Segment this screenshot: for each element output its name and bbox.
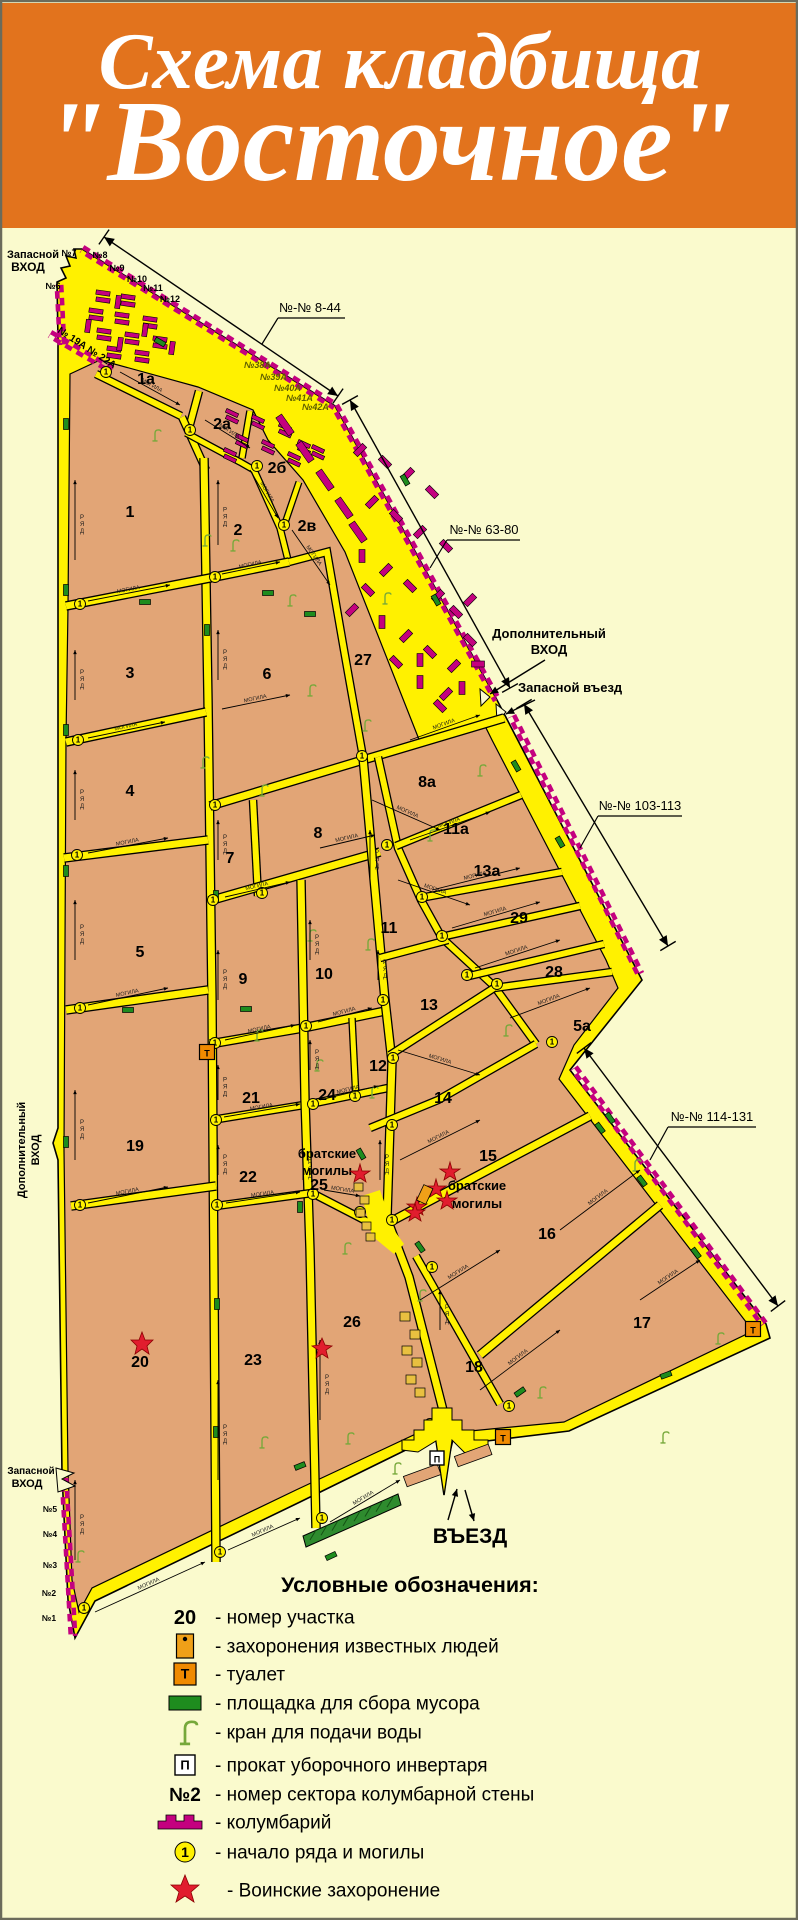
svg-text:№42А: №42А xyxy=(302,402,329,412)
svg-text:РЯД: РЯД xyxy=(80,925,84,945)
svg-text:№-№ 63-80: №-№ 63-80 xyxy=(449,522,518,537)
svg-text:№-№ 8-44: №-№ 8-44 xyxy=(279,300,341,315)
svg-text:№3: №3 xyxy=(43,1560,57,1570)
svg-text:№12: №12 xyxy=(160,294,180,304)
svg-text:1: 1 xyxy=(188,426,193,435)
svg-text:ВЪЕЗД: ВЪЕЗД xyxy=(433,1525,508,1548)
svg-text:№5: №5 xyxy=(43,1504,57,1514)
svg-text:1: 1 xyxy=(78,1004,83,1013)
svg-text:РЯД: РЯД xyxy=(325,1375,329,1395)
svg-text:19: 19 xyxy=(126,1138,144,1155)
svg-text:РЯД: РЯД xyxy=(445,1305,449,1325)
svg-text:РЯД: РЯД xyxy=(223,1425,227,1445)
svg-text:11: 11 xyxy=(381,920,398,937)
svg-text:братские: братские xyxy=(298,1146,356,1161)
svg-text:25: 25 xyxy=(310,1177,328,1194)
svg-text:1: 1 xyxy=(76,736,81,745)
svg-text:- захоронения известных людей: - захоронения известных людей xyxy=(215,1637,499,1658)
svg-text:1: 1 xyxy=(311,1100,316,1109)
svg-text:1: 1 xyxy=(213,573,218,582)
svg-text:№4: №4 xyxy=(43,1529,57,1539)
svg-text:РЯД: РЯД xyxy=(223,650,227,670)
svg-text:2б: 2б xyxy=(268,460,287,477)
svg-text:Т: Т xyxy=(500,1434,506,1444)
svg-text:10: 10 xyxy=(315,966,333,983)
svg-text:1: 1 xyxy=(104,368,109,377)
svg-text:РЯД: РЯД xyxy=(223,835,227,855)
svg-text:1: 1 xyxy=(440,932,445,941)
svg-text:- Воинские захоронение: - Воинские захоронение xyxy=(227,1881,440,1902)
svg-text:№-№ 114-131: №-№ 114-131 xyxy=(671,1109,754,1124)
svg-text:РЯД: РЯД xyxy=(223,508,227,528)
svg-text:14: 14 xyxy=(434,1090,452,1107)
svg-text:16: 16 xyxy=(538,1226,556,1243)
svg-text:1: 1 xyxy=(320,1514,325,1523)
svg-text:1: 1 xyxy=(78,1201,83,1210)
svg-text:1: 1 xyxy=(390,1121,395,1130)
svg-text:№8: №8 xyxy=(92,250,107,260)
svg-text:2: 2 xyxy=(234,522,243,539)
svg-text:1: 1 xyxy=(126,504,135,521)
svg-text:№11: №11 xyxy=(143,283,163,293)
svg-text:26: 26 xyxy=(343,1314,361,1331)
svg-text:8: 8 xyxy=(314,825,323,842)
svg-text:5: 5 xyxy=(136,944,145,961)
svg-text:1: 1 xyxy=(420,893,425,902)
svg-text:Дополнительный: Дополнительный xyxy=(16,1102,28,1198)
svg-text:РЯД: РЯД xyxy=(223,1078,227,1098)
svg-text:РЯД: РЯД xyxy=(375,850,379,870)
svg-text:1: 1 xyxy=(181,1844,189,1860)
svg-text:РЯД: РЯД xyxy=(315,935,319,955)
svg-text:6: 6 xyxy=(263,666,272,683)
svg-text:№9: №9 xyxy=(109,263,124,273)
svg-text:1: 1 xyxy=(391,1054,396,1063)
svg-text:8а: 8а xyxy=(418,774,436,791)
svg-text:Дополнительный: Дополнительный xyxy=(492,626,606,641)
svg-text:1: 1 xyxy=(304,1022,309,1031)
svg-text:9: 9 xyxy=(239,971,248,988)
svg-text:- колумбарий: - колумбарий xyxy=(215,1813,331,1834)
svg-text:12: 12 xyxy=(369,1058,387,1075)
svg-text:№7: №7 xyxy=(61,248,76,258)
svg-text:- номер участка: - номер участка xyxy=(215,1608,355,1629)
svg-text:РЯД: РЯД xyxy=(80,670,84,690)
svg-text:могилы: могилы xyxy=(452,1196,502,1211)
svg-text:- номер сектора колумбарной ст: - номер сектора колумбарной стены xyxy=(215,1785,534,1806)
svg-text:20: 20 xyxy=(131,1354,149,1371)
svg-text:Условные обозначения:: Условные обозначения: xyxy=(281,1573,539,1597)
svg-text:3: 3 xyxy=(126,665,135,682)
svg-text:15: 15 xyxy=(479,1148,497,1165)
svg-text:1: 1 xyxy=(495,980,500,989)
svg-text:1: 1 xyxy=(215,1201,220,1210)
svg-text:1: 1 xyxy=(360,752,365,761)
svg-text:28: 28 xyxy=(545,964,563,981)
svg-text:П: П xyxy=(434,1455,440,1465)
svg-text:17: 17 xyxy=(633,1315,651,1332)
svg-text:"Восточное": "Восточное" xyxy=(43,78,737,206)
svg-text:1: 1 xyxy=(282,521,287,530)
svg-text:23: 23 xyxy=(244,1352,262,1369)
svg-text:братские: братские xyxy=(448,1178,506,1193)
svg-text:№40А: №40А xyxy=(274,383,301,393)
svg-text:27: 27 xyxy=(354,652,372,669)
svg-text:РЯД: РЯД xyxy=(315,1050,319,1070)
svg-text:1: 1 xyxy=(75,851,80,860)
svg-text:1: 1 xyxy=(78,600,83,609)
svg-text:П: П xyxy=(180,1758,189,1773)
svg-text:№39А: №39А xyxy=(260,372,287,382)
svg-text:1: 1 xyxy=(353,1092,358,1101)
svg-text:29: 29 xyxy=(510,910,528,927)
svg-text:Т: Т xyxy=(750,1326,756,1336)
svg-text:№2: №2 xyxy=(169,1785,201,1806)
svg-text:Запасной: Запасной xyxy=(7,1466,54,1477)
svg-text:13: 13 xyxy=(420,997,438,1014)
svg-text:1: 1 xyxy=(381,996,386,1005)
svg-text:№38А: №38А xyxy=(244,360,271,370)
svg-text:№1: №1 xyxy=(42,1613,56,1623)
svg-text:- прокат уборочного инвертаря: - прокат уборочного инвертаря xyxy=(215,1756,488,1777)
svg-text:РЯД: РЯД xyxy=(80,1515,84,1535)
svg-text:1: 1 xyxy=(430,1263,435,1272)
svg-text:- кран для подачи воды: - кран для подачи воды xyxy=(215,1723,422,1744)
svg-text:ВХОД: ВХОД xyxy=(11,260,45,274)
svg-text:Т: Т xyxy=(204,1049,210,1059)
svg-text:Т: Т xyxy=(181,1666,190,1682)
svg-text:1: 1 xyxy=(260,889,265,898)
svg-text:ВХОД: ВХОД xyxy=(12,1478,43,1490)
svg-text:- начало ряда и могилы: - начало ряда и могилы xyxy=(215,1843,424,1864)
svg-text:1: 1 xyxy=(82,1604,87,1613)
svg-text:1: 1 xyxy=(214,1116,219,1125)
svg-text:24: 24 xyxy=(318,1087,336,1104)
svg-text:- туалет: - туалет xyxy=(215,1665,285,1686)
svg-text:РЯД: РЯД xyxy=(385,1155,389,1175)
svg-text:18: 18 xyxy=(465,1359,483,1376)
svg-text:22: 22 xyxy=(239,1169,257,1186)
svg-text:РЯД: РЯД xyxy=(80,790,84,810)
svg-text:РЯД: РЯД xyxy=(80,1120,84,1140)
svg-text:1: 1 xyxy=(550,1038,555,1047)
svg-text:ВХОД: ВХОД xyxy=(30,1134,42,1165)
svg-text:РЯД: РЯД xyxy=(383,960,387,980)
svg-text:5а: 5а xyxy=(573,1018,591,1035)
svg-text:- площадка для сбора мусора: - площадка для сбора мусора xyxy=(215,1694,480,1715)
svg-text:могилы: могилы xyxy=(302,1163,352,1178)
svg-text:1: 1 xyxy=(385,841,390,850)
svg-text:1: 1 xyxy=(255,462,260,471)
svg-text:4: 4 xyxy=(126,783,135,800)
svg-text:№6: №6 xyxy=(45,281,60,291)
svg-text:РЯД: РЯД xyxy=(223,1155,227,1175)
svg-text:ВХОД: ВХОД xyxy=(531,642,568,657)
svg-text:2в: 2в xyxy=(298,518,317,535)
svg-text:20: 20 xyxy=(174,1607,196,1629)
svg-text:РЯД: РЯД xyxy=(80,515,84,535)
svg-text:1: 1 xyxy=(211,896,216,905)
svg-text:РЯД: РЯД xyxy=(223,970,227,990)
svg-text:1: 1 xyxy=(465,971,470,980)
svg-text:1: 1 xyxy=(213,801,218,810)
svg-text:1: 1 xyxy=(390,1216,395,1225)
svg-text:Запасной въезд: Запасной въезд xyxy=(518,680,623,695)
svg-text:№2: №2 xyxy=(42,1588,56,1598)
svg-text:№-№ 103-113: №-№ 103-113 xyxy=(599,798,682,813)
svg-text:1: 1 xyxy=(218,1548,223,1557)
svg-text:1: 1 xyxy=(507,1402,512,1411)
